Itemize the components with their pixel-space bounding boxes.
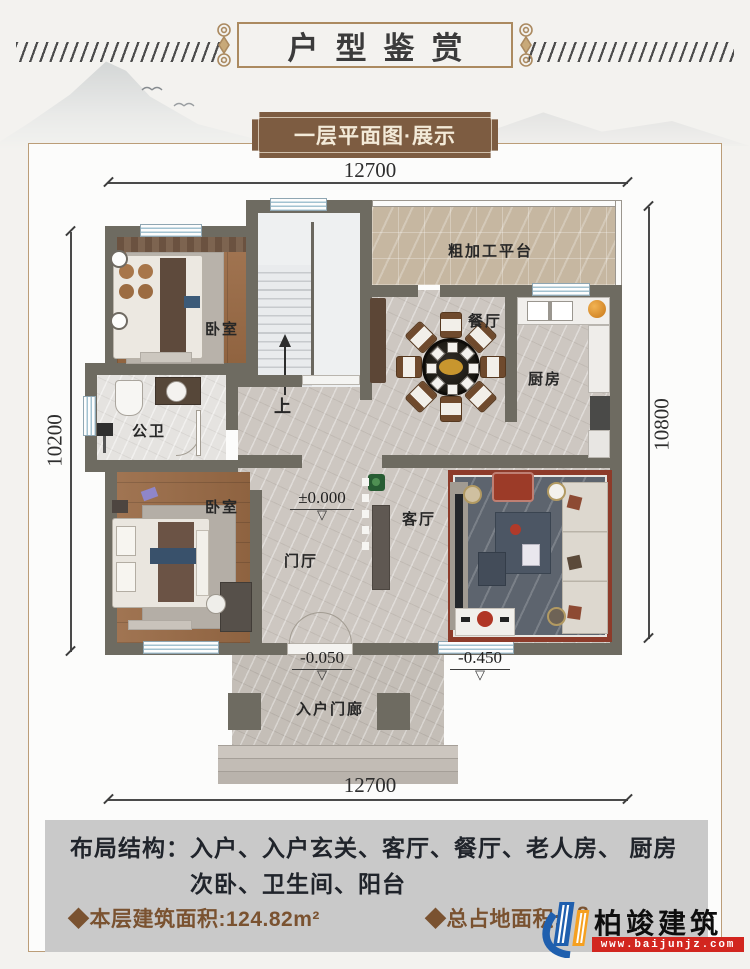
bed-runner-blue [150, 548, 202, 564]
wall [85, 460, 238, 472]
stairs-up-label: 上 [274, 392, 291, 417]
plate [447, 342, 458, 353]
logo-brand-text: 柏竣建筑 [594, 902, 722, 942]
fruit-bowl [588, 300, 606, 318]
plate [447, 384, 458, 395]
bed-cushion [196, 530, 209, 596]
nightstand [112, 500, 128, 513]
bed-runner [160, 258, 186, 354]
vase [510, 524, 521, 535]
wall [238, 455, 302, 468]
elevation-triangle-icon [282, 670, 362, 679]
room-label-porch: 入户门廊 [296, 698, 364, 719]
coffee-table-small [478, 552, 506, 586]
wall [368, 285, 418, 297]
porch-step [218, 745, 458, 759]
platform-railing-top [372, 200, 622, 207]
tea-set [500, 617, 509, 622]
elevation-marker-foyer: ±0.000 [278, 488, 366, 519]
room-label-bedroom-bottom: 卧室 [205, 496, 239, 517]
dimension-line-left [70, 232, 72, 652]
hatch-right-decoration [524, 42, 734, 62]
door-leaf [196, 410, 201, 456]
wall [238, 375, 302, 387]
side-table [547, 607, 566, 626]
scroll-ornament-left [210, 20, 238, 70]
room-label-platform: 粗加工平台 [448, 240, 533, 261]
dimension-line-top [108, 182, 628, 184]
room-label-bathroom: 公卫 [132, 420, 166, 441]
wall [505, 297, 517, 422]
pillow-blue [184, 296, 200, 308]
window [532, 283, 590, 296]
elevation-triangle-icon [440, 670, 520, 679]
room-label-living: 客厅 [402, 508, 436, 529]
wall [85, 363, 258, 375]
pillow [116, 526, 136, 556]
dimension-right: 10800 [650, 385, 675, 465]
sofa-pillow [567, 555, 582, 570]
dimension-line-right [648, 207, 650, 639]
dining-chair [396, 356, 422, 378]
logo-website-banner: www.baijunjz.com [592, 937, 744, 952]
bath-lamp-pole [103, 436, 106, 453]
dining-table-group [422, 338, 480, 396]
window [83, 396, 96, 436]
window [140, 224, 202, 237]
dimension-bottom: 12700 [330, 773, 410, 798]
bath-lamp-table [97, 423, 113, 436]
birds-art [140, 84, 200, 116]
dimension-line-bottom [108, 799, 628, 801]
dimension-left: 10200 [43, 401, 68, 481]
dining-cabinet [370, 298, 386, 383]
hatch-left-decoration [16, 42, 222, 62]
plate [468, 363, 479, 374]
side-table [463, 485, 482, 504]
wardrobe [117, 237, 246, 252]
wall [382, 455, 622, 468]
room-label-kitchen: 厨房 [528, 368, 562, 389]
window [270, 198, 327, 211]
layout-label: 布局结构： [70, 830, 190, 902]
books [522, 544, 540, 566]
company-logo: 柏竣建筑 www.baijunjz.com [538, 896, 750, 960]
platform-railing-right [615, 200, 622, 292]
sofa-pillow [567, 605, 582, 620]
plant-leaf [372, 478, 380, 486]
kitchen-counter-side [588, 325, 610, 393]
pillow [119, 284, 134, 299]
banner-inner-border [258, 117, 492, 153]
scroll-ornament-right [512, 20, 540, 70]
bedside-lamp [110, 312, 128, 330]
bed-bench [140, 352, 192, 363]
building-logo-icon [538, 898, 596, 958]
porch-column [377, 693, 410, 730]
refrigerator [588, 430, 610, 458]
tea-set [461, 617, 470, 622]
dining-chair [480, 356, 506, 378]
stair-up-arrowhead [279, 334, 291, 347]
pillow [138, 264, 153, 279]
teapot [477, 611, 493, 627]
pillow [116, 562, 136, 592]
dimension-top: 12700 [330, 158, 410, 183]
page-title: 户型鉴赏 [271, 23, 480, 68]
dining-chair [440, 396, 462, 422]
logo-website-text: www.baijunjz.com [601, 939, 735, 951]
room-label-dining: 餐厅 [468, 310, 502, 331]
wall [226, 375, 238, 430]
layout-line1: 入户、入户玄关、客厅、餐厅、老人房、 厨房 [190, 830, 690, 866]
bedside-lamp [110, 250, 128, 268]
armchair [492, 472, 534, 502]
bed-bench [128, 620, 192, 630]
layout-structure: 布局结构： 入户、入户玄关、客厅、餐厅、老人房、 厨房 次卧、卫生间、阳台 [70, 830, 690, 902]
shoe-cabinet [372, 505, 390, 590]
room-label-foyer: 门厅 [284, 550, 318, 571]
toilet [115, 380, 143, 416]
elevation-marker-terrace: -0.450 [440, 648, 520, 679]
porch-column [228, 693, 261, 730]
tv [455, 494, 463, 616]
window [143, 641, 219, 654]
room-label-bedroom-top: 卧室 [205, 318, 239, 339]
title-frame: 户型鉴赏 [237, 22, 513, 68]
floor-area-text: ◆本层建筑面积:124.82m² [68, 903, 320, 933]
wall [246, 200, 258, 387]
elevation-marker-porch: -0.050 [282, 648, 362, 679]
wall [440, 285, 505, 297]
subtitle-banner: 一层平面图·展示 [252, 112, 498, 158]
kitchen-sink [527, 301, 573, 321]
understair-storage [302, 375, 360, 385]
poster: 户型鉴赏 一层平面图·展示 [0, 0, 750, 969]
plate [426, 363, 437, 374]
porch-step [218, 758, 458, 772]
kitchen-appliance [590, 396, 610, 430]
elevation-triangle-icon [278, 510, 366, 519]
pillow [138, 284, 153, 299]
sink [166, 381, 187, 402]
desk-chair [206, 594, 226, 614]
stair-up-arrow [284, 345, 286, 395]
side-table [547, 482, 566, 501]
stair-rail [311, 222, 314, 385]
dining-chair [440, 312, 462, 338]
dining-centerpiece [439, 359, 463, 375]
